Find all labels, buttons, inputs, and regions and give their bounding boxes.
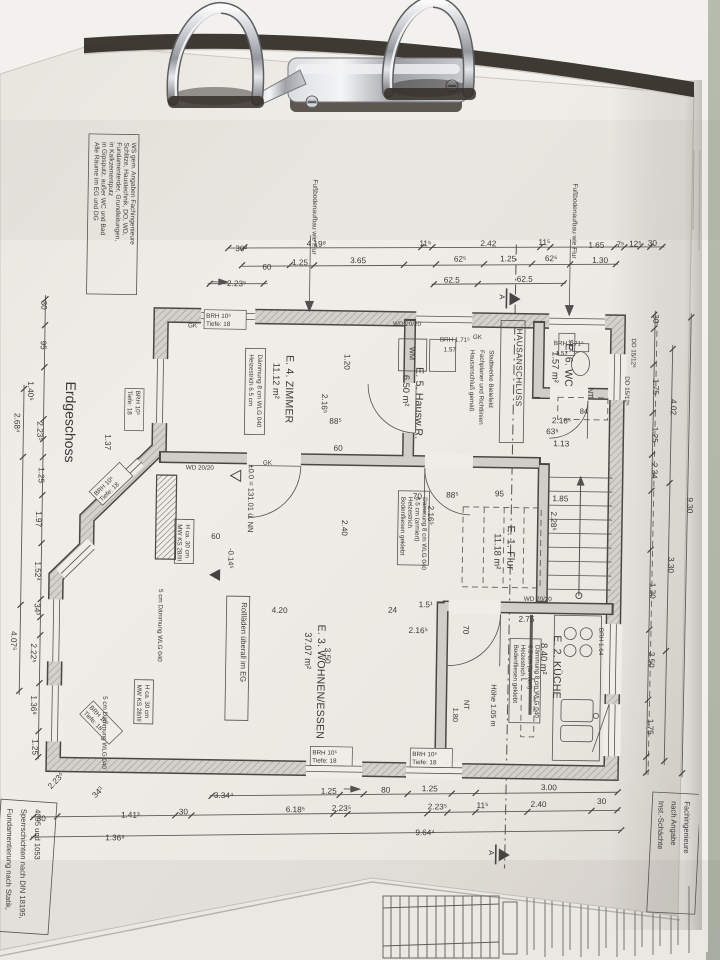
photo-lighting: [0, 0, 720, 960]
scene-svg: BRH 10⁵Tiefe: 18BRH 10⁵Tiefe: 18BRH 10⁵T…: [0, 0, 720, 960]
floorplan-photo: BRH 10⁵Tiefe: 18BRH 10⁵Tiefe: 18BRH 10⁵T…: [0, 0, 720, 960]
